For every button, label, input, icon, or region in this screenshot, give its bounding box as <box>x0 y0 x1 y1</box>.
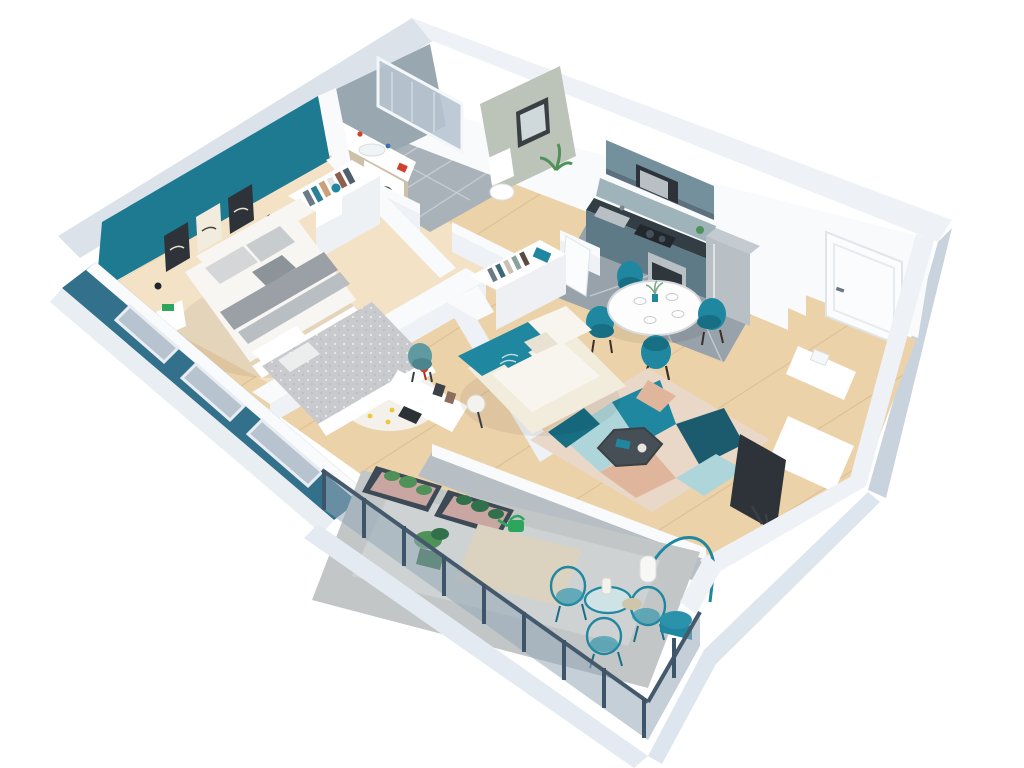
floorplan-render <box>0 0 1024 768</box>
coffee-table-bowl <box>638 444 647 453</box>
vanity-basin <box>359 144 385 156</box>
blue-bottle <box>386 144 391 149</box>
sconce-lamp-left <box>155 283 162 290</box>
candle-lantern <box>602 578 611 594</box>
plate-4 <box>672 311 684 318</box>
lamp-shade <box>640 556 656 582</box>
railing-return-post <box>672 638 676 678</box>
plate-3 <box>644 317 656 324</box>
herb-jar <box>696 226 704 234</box>
cushion <box>622 598 642 610</box>
pan-2 <box>659 236 666 243</box>
vase <box>652 294 658 302</box>
ball-floor-lamp <box>467 395 485 413</box>
faucet <box>620 206 625 211</box>
plate <box>634 298 646 305</box>
pan <box>646 230 654 238</box>
green-box <box>162 304 174 311</box>
entry-partition <box>788 236 806 316</box>
red-bottle <box>357 131 362 136</box>
apartment-3d-scene <box>0 0 1024 768</box>
toilet-bowl <box>490 184 514 200</box>
plate-2 <box>666 294 678 301</box>
bedside-lamp-right <box>332 184 341 193</box>
